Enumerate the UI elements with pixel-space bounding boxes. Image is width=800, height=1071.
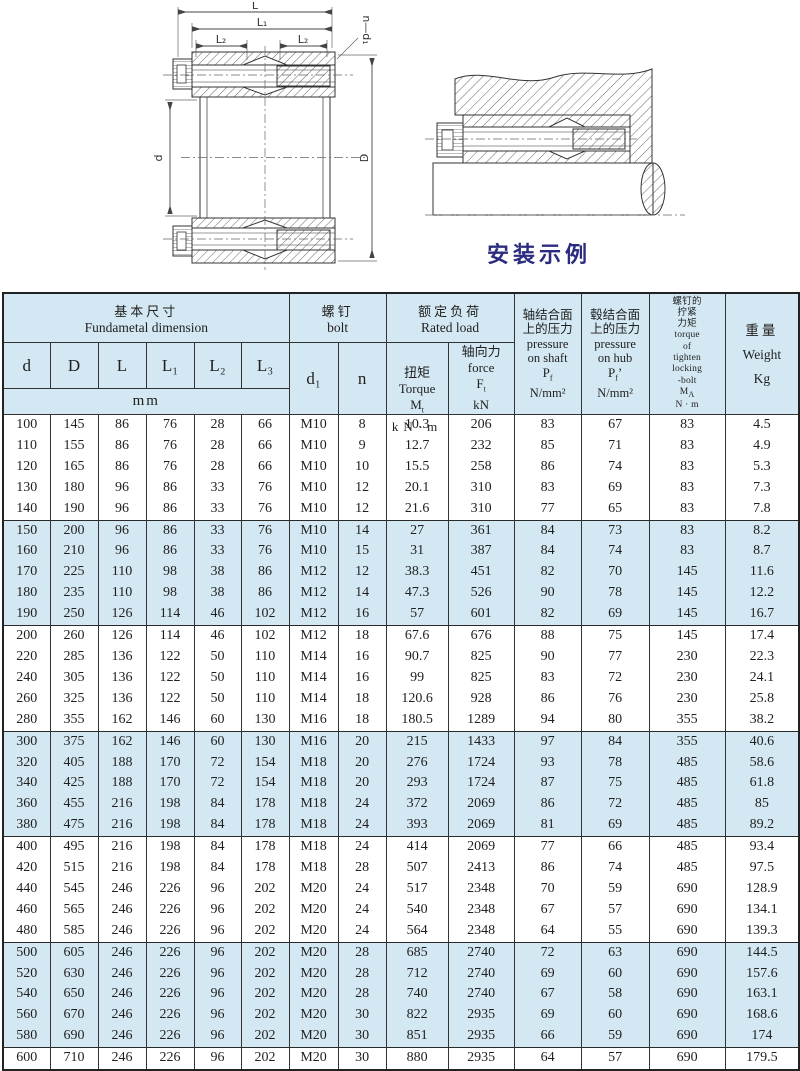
cell-L2: 84 xyxy=(194,858,241,879)
cell-weight: 7.8 xyxy=(725,499,799,520)
cell-p_hub: 57 xyxy=(581,1048,649,1070)
table-row: 58069024622696202M203085129356659690174 xyxy=(3,1026,799,1047)
cell-L2: 50 xyxy=(194,689,241,710)
cell-L2: 33 xyxy=(194,499,241,520)
cell-d1: M10 xyxy=(289,478,338,499)
cell-D: 690 xyxy=(50,1026,98,1047)
cell-L: 246 xyxy=(98,1048,146,1070)
cell-L2: 96 xyxy=(194,964,241,985)
cell-d1: M20 xyxy=(289,900,338,921)
table-row: 30037516214660130M16202151433978435540.6 xyxy=(3,731,799,752)
cell-L1: 98 xyxy=(146,583,194,604)
cell-ma: 83 xyxy=(649,499,725,520)
cell-force: 2740 xyxy=(448,984,514,1005)
cell-L3: 102 xyxy=(241,626,289,647)
cell-torque: 372 xyxy=(386,794,448,815)
cell-torque: 540 xyxy=(386,900,448,921)
cell-L2: 33 xyxy=(194,541,241,562)
cell-d: 600 xyxy=(3,1048,50,1070)
cell-ma: 230 xyxy=(649,647,725,668)
cell-ma: 485 xyxy=(649,794,725,815)
cell-L2: 33 xyxy=(194,478,241,499)
cell-d: 300 xyxy=(3,731,50,752)
cell-d1: M10 xyxy=(289,436,338,457)
cell-weight: 128.9 xyxy=(725,879,799,900)
cell-weight: 58.6 xyxy=(725,753,799,774)
cell-d: 580 xyxy=(3,1026,50,1047)
table-row: 14019096863376M101221.63107765837.8 xyxy=(3,499,799,520)
cell-weight: 179.5 xyxy=(725,1048,799,1070)
cell-force: 1724 xyxy=(448,773,514,794)
cell-p_shaft: 67 xyxy=(514,900,581,921)
cell-L3: 178 xyxy=(241,858,289,879)
cell-n: 20 xyxy=(338,773,386,794)
cell-L2: 46 xyxy=(194,626,241,647)
cell-L2: 84 xyxy=(194,815,241,836)
cell-L2: 50 xyxy=(194,647,241,668)
cell-d1: M20 xyxy=(289,1048,338,1070)
cell-L: 136 xyxy=(98,689,146,710)
cell-ma: 83 xyxy=(649,520,725,541)
cell-L1: 226 xyxy=(146,879,194,900)
dim-label-L2-right: L₂ xyxy=(298,33,309,46)
cell-n: 14 xyxy=(338,520,386,541)
table-row: 56067024622696202M203082229356960690168.… xyxy=(3,1005,799,1026)
cell-d: 160 xyxy=(3,541,50,562)
cell-weight: 40.6 xyxy=(725,731,799,752)
cell-d: 360 xyxy=(3,794,50,815)
header-col-L2: L₂ xyxy=(194,343,241,389)
cell-torque: 67.6 xyxy=(386,626,448,647)
cell-weight: 7.3 xyxy=(725,478,799,499)
cell-d1: M20 xyxy=(289,1005,338,1026)
cell-d1: M18 xyxy=(289,753,338,774)
cell-n: 28 xyxy=(338,858,386,879)
cell-p_hub: 60 xyxy=(581,964,649,985)
table-row: 170225110983886M121238.3451827014511.6 xyxy=(3,562,799,583)
cell-d: 170 xyxy=(3,562,50,583)
cell-L2: 84 xyxy=(194,837,241,858)
cell-n: 10 xyxy=(338,457,386,478)
cell-ma: 145 xyxy=(649,583,725,604)
cell-d: 200 xyxy=(3,626,50,647)
cell-weight: 8.7 xyxy=(725,541,799,562)
cell-p_hub: 84 xyxy=(581,731,649,752)
cell-L: 246 xyxy=(98,921,146,942)
cell-weight: 61.8 xyxy=(725,773,799,794)
cell-d: 150 xyxy=(3,520,50,541)
dim-label-d: d xyxy=(152,155,165,162)
cell-ma: 485 xyxy=(649,815,725,836)
cell-p_shaft: 77 xyxy=(514,837,581,858)
cell-p_hub: 55 xyxy=(581,921,649,942)
cell-force: 206 xyxy=(448,415,514,436)
cell-L3: 86 xyxy=(241,583,289,604)
cell-force: 676 xyxy=(448,626,514,647)
cell-p_hub: 58 xyxy=(581,984,649,1005)
cell-D: 545 xyxy=(50,879,98,900)
cell-D: 630 xyxy=(50,964,98,985)
cell-n: 14 xyxy=(338,583,386,604)
cell-d1: M20 xyxy=(289,984,338,1005)
cell-d: 180 xyxy=(3,583,50,604)
cell-force: 310 xyxy=(448,499,514,520)
cell-L2: 96 xyxy=(194,984,241,1005)
cell-d: 500 xyxy=(3,942,50,963)
cell-force: 2935 xyxy=(448,1005,514,1026)
cell-L1: 114 xyxy=(146,626,194,647)
cell-L: 162 xyxy=(98,710,146,731)
cell-n: 12 xyxy=(338,499,386,520)
cell-D: 515 xyxy=(50,858,98,879)
table-row: 42051521619884178M18285072413867448597.5 xyxy=(3,858,799,879)
cell-ma: 485 xyxy=(649,858,725,879)
cell-force: 825 xyxy=(448,647,514,668)
cell-L1: 86 xyxy=(146,478,194,499)
cell-force: 2348 xyxy=(448,921,514,942)
cell-L: 246 xyxy=(98,1026,146,1047)
cell-L2: 96 xyxy=(194,1005,241,1026)
cell-torque: 38.3 xyxy=(386,562,448,583)
cell-p_shaft: 64 xyxy=(514,1048,581,1070)
cell-p_hub: 72 xyxy=(581,794,649,815)
cell-L1: 226 xyxy=(146,984,194,1005)
cell-L1: 198 xyxy=(146,794,194,815)
cell-p_hub: 70 xyxy=(581,562,649,583)
cell-force: 2740 xyxy=(448,942,514,963)
cell-L2: 96 xyxy=(194,879,241,900)
cell-weight: 38.2 xyxy=(725,710,799,731)
cell-d1: M18 xyxy=(289,815,338,836)
cell-d: 400 xyxy=(3,837,50,858)
header-pressure-on-hub: 毂结合面 上的压力 pressure on hub Pf’ N/mm² xyxy=(581,293,649,415)
dim-label-n-d1: n—d₁ xyxy=(360,15,373,44)
cell-d1: M14 xyxy=(289,668,338,689)
cell-L: 110 xyxy=(98,583,146,604)
cell-D: 225 xyxy=(50,562,98,583)
cell-p_hub: 67 xyxy=(581,415,649,436)
cell-d: 460 xyxy=(3,900,50,921)
table-row: 180235110983886M121447.3526907814512.2 xyxy=(3,583,799,604)
cell-D: 155 xyxy=(50,436,98,457)
header-bolt: 螺钉 bolt xyxy=(289,293,386,343)
cell-ma: 690 xyxy=(649,1005,725,1026)
cell-L2: 38 xyxy=(194,583,241,604)
cell-force: 1724 xyxy=(448,753,514,774)
cell-force: 526 xyxy=(448,583,514,604)
cell-torque: 507 xyxy=(386,858,448,879)
cell-L1: 198 xyxy=(146,837,194,858)
cell-D: 200 xyxy=(50,520,98,541)
cell-force: 387 xyxy=(448,541,514,562)
cell-d1: M20 xyxy=(289,921,338,942)
table-row: 50060524622696202M202868527407263690144.… xyxy=(3,942,799,963)
cell-L3: 102 xyxy=(241,604,289,625)
cell-p_hub: 75 xyxy=(581,626,649,647)
cell-d: 520 xyxy=(3,964,50,985)
cell-p_shaft: 67 xyxy=(514,984,581,1005)
table-row: 38047521619884178M18243932069816948589.2 xyxy=(3,815,799,836)
cell-L: 216 xyxy=(98,794,146,815)
cell-L: 246 xyxy=(98,879,146,900)
cell-L1: 86 xyxy=(146,541,194,562)
cell-weight: 163.1 xyxy=(725,984,799,1005)
cell-L2: 28 xyxy=(194,436,241,457)
table-row: 11015586762866M10912.72328571834.9 xyxy=(3,436,799,457)
cell-ma: 145 xyxy=(649,604,725,625)
cell-d: 380 xyxy=(3,815,50,836)
cell-force: 2413 xyxy=(448,858,514,879)
cell-ma: 690 xyxy=(649,1048,725,1070)
cell-L2: 96 xyxy=(194,921,241,942)
cell-weight: 174 xyxy=(725,1026,799,1047)
cell-torque: 12.7 xyxy=(386,436,448,457)
cell-L1: 170 xyxy=(146,753,194,774)
cell-L3: 130 xyxy=(241,710,289,731)
cell-n: 30 xyxy=(338,1048,386,1070)
header-bolt-tightening-torque: 螺钉的 拧紧 力矩 torque of tighten locking -bol… xyxy=(649,293,725,415)
cell-n: 15 xyxy=(338,541,386,562)
cell-p_shaft: 88 xyxy=(514,626,581,647)
cell-L: 136 xyxy=(98,668,146,689)
cell-L: 246 xyxy=(98,942,146,963)
cell-D: 165 xyxy=(50,457,98,478)
header-col-force: 轴向力 force Ft kN xyxy=(448,343,514,415)
cell-L3: 76 xyxy=(241,499,289,520)
cell-weight: 5.3 xyxy=(725,457,799,478)
cell-L2: 84 xyxy=(194,794,241,815)
cell-weight: 134.1 xyxy=(725,900,799,921)
cell-D: 325 xyxy=(50,689,98,710)
cell-D: 250 xyxy=(50,604,98,625)
cell-L1: 76 xyxy=(146,457,194,478)
drawings-area: L L₁ L₂ L₂ L₃ d D n—d₁ xyxy=(0,0,800,292)
cell-n: 16 xyxy=(338,668,386,689)
cell-L2: 96 xyxy=(194,900,241,921)
cell-weight: 8.2 xyxy=(725,520,799,541)
cell-p_shaft: 97 xyxy=(514,731,581,752)
cell-L1: 198 xyxy=(146,815,194,836)
header-weight: 重量 Weight Kg xyxy=(725,293,799,415)
cell-force: 2069 xyxy=(448,794,514,815)
cell-d: 480 xyxy=(3,921,50,942)
cell-p_hub: 72 xyxy=(581,668,649,689)
cell-L3: 76 xyxy=(241,520,289,541)
cell-weight: 16.7 xyxy=(725,604,799,625)
cell-L: 216 xyxy=(98,837,146,858)
cell-p_shaft: 87 xyxy=(514,773,581,794)
cell-d: 100 xyxy=(3,415,50,436)
cell-ma: 485 xyxy=(649,773,725,794)
cell-d1: M12 xyxy=(289,583,338,604)
cell-ma: 690 xyxy=(649,879,725,900)
cell-L2: 50 xyxy=(194,668,241,689)
cell-p_shaft: 90 xyxy=(514,647,581,668)
header-pressure-on-shaft: 轴结合面 上的压力 pressure on shaft Pf N/mm² xyxy=(514,293,581,415)
cell-n: 8 xyxy=(338,415,386,436)
cell-force: 601 xyxy=(448,604,514,625)
cell-d: 560 xyxy=(3,1005,50,1026)
cell-p_shaft: 94 xyxy=(514,710,581,731)
cell-D: 260 xyxy=(50,626,98,647)
cell-n: 28 xyxy=(338,964,386,985)
table-row: 19025012611446102M121657601826914516.7 xyxy=(3,604,799,625)
cell-L: 110 xyxy=(98,562,146,583)
cell-d1: M12 xyxy=(289,626,338,647)
cell-torque: 517 xyxy=(386,879,448,900)
cell-p_shaft: 70 xyxy=(514,879,581,900)
cell-L1: 226 xyxy=(146,964,194,985)
cell-L3: 130 xyxy=(241,731,289,752)
cell-p_shaft: 83 xyxy=(514,478,581,499)
cell-ma: 230 xyxy=(649,689,725,710)
cell-torque: 393 xyxy=(386,815,448,836)
cell-D: 305 xyxy=(50,668,98,689)
cell-d: 240 xyxy=(3,668,50,689)
cell-L3: 202 xyxy=(241,1026,289,1047)
cell-d1: M10 xyxy=(289,457,338,478)
cell-torque: 276 xyxy=(386,753,448,774)
cell-d1: M16 xyxy=(289,710,338,731)
cell-n: 24 xyxy=(338,921,386,942)
cell-force: 258 xyxy=(448,457,514,478)
cell-L: 86 xyxy=(98,436,146,457)
cell-p_shaft: 72 xyxy=(514,942,581,963)
cell-torque: 685 xyxy=(386,942,448,963)
cell-torque: 712 xyxy=(386,964,448,985)
cell-D: 710 xyxy=(50,1048,98,1070)
cell-L: 96 xyxy=(98,520,146,541)
cell-ma: 83 xyxy=(649,541,725,562)
cell-L1: 76 xyxy=(146,436,194,457)
cell-force: 928 xyxy=(448,689,514,710)
cell-L1: 226 xyxy=(146,1005,194,1026)
cell-L: 136 xyxy=(98,647,146,668)
cell-p_hub: 59 xyxy=(581,879,649,900)
cell-p_shaft: 86 xyxy=(514,689,581,710)
table-row: 28035516214660130M1618180.51289948035538… xyxy=(3,710,799,731)
cell-weight: 89.2 xyxy=(725,815,799,836)
cell-d1: M16 xyxy=(289,731,338,752)
cell-d1: M12 xyxy=(289,562,338,583)
cell-p_hub: 60 xyxy=(581,1005,649,1026)
cell-n: 16 xyxy=(338,647,386,668)
cell-L3: 154 xyxy=(241,773,289,794)
table-row: 34042518817072154M18202931724877548561.8 xyxy=(3,773,799,794)
cell-p_shaft: 81 xyxy=(514,815,581,836)
cell-torque: 822 xyxy=(386,1005,448,1026)
cell-force: 2348 xyxy=(448,879,514,900)
cell-L1: 226 xyxy=(146,1048,194,1070)
cell-L1: 226 xyxy=(146,921,194,942)
cell-L2: 96 xyxy=(194,1048,241,1070)
cell-L3: 178 xyxy=(241,837,289,858)
cell-n: 28 xyxy=(338,984,386,1005)
cell-L3: 178 xyxy=(241,815,289,836)
cell-ma: 485 xyxy=(649,753,725,774)
cell-p_hub: 69 xyxy=(581,604,649,625)
cell-force: 2935 xyxy=(448,1026,514,1047)
header-col-D: D xyxy=(50,343,98,389)
cell-d1: M10 xyxy=(289,541,338,562)
cell-L1: 114 xyxy=(146,604,194,625)
cell-weight: 24.1 xyxy=(725,668,799,689)
cell-d1: M10 xyxy=(289,520,338,541)
cell-D: 650 xyxy=(50,984,98,1005)
cell-p_hub: 77 xyxy=(581,647,649,668)
table-row: 15020096863376M1014273618473838.2 xyxy=(3,520,799,541)
cell-p_hub: 78 xyxy=(581,583,649,604)
header-col-L3: L₃ xyxy=(241,343,289,389)
table-body: 10014586762866M10810.32068367834.5110155… xyxy=(3,415,799,1071)
cell-d: 340 xyxy=(3,773,50,794)
cell-ma: 690 xyxy=(649,1026,725,1047)
cell-ma: 145 xyxy=(649,562,725,583)
header-col-torque: 扭矩 Torque Mt kN·m xyxy=(386,343,448,415)
table-row: 22028513612250110M141690.7825907723022.3 xyxy=(3,647,799,668)
cell-weight: 17.4 xyxy=(725,626,799,647)
cell-d: 110 xyxy=(3,436,50,457)
cell-d: 130 xyxy=(3,478,50,499)
cell-D: 235 xyxy=(50,583,98,604)
cell-p_shaft: 86 xyxy=(514,457,581,478)
cell-L3: 202 xyxy=(241,1048,289,1070)
cell-d1: M20 xyxy=(289,1026,338,1047)
cell-weight: 139.3 xyxy=(725,921,799,942)
cell-p_shaft: 82 xyxy=(514,604,581,625)
cell-ma: 690 xyxy=(649,964,725,985)
table-row: 48058524622696202M202456423486455690139.… xyxy=(3,921,799,942)
cell-D: 210 xyxy=(50,541,98,562)
cell-torque: 90.7 xyxy=(386,647,448,668)
table-row: 36045521619884178M18243722069867248585 xyxy=(3,794,799,815)
assembly-cross-section-drawing: L L₁ L₂ L₂ L₃ d D n—d₁ xyxy=(125,2,420,290)
cell-L: 216 xyxy=(98,858,146,879)
cell-torque: 180.5 xyxy=(386,710,448,731)
cell-force: 2935 xyxy=(448,1048,514,1070)
cell-p_hub: 57 xyxy=(581,900,649,921)
cell-D: 670 xyxy=(50,1005,98,1026)
table-row: 44054524622696202M202451723487059690128.… xyxy=(3,879,799,900)
cell-d: 440 xyxy=(3,879,50,900)
cell-d1: M20 xyxy=(289,879,338,900)
cell-force: 361 xyxy=(448,520,514,541)
cell-L1: 76 xyxy=(146,415,194,436)
cell-L1: 146 xyxy=(146,731,194,752)
cell-d1: M12 xyxy=(289,604,338,625)
cell-force: 2069 xyxy=(448,837,514,858)
cell-ma: 83 xyxy=(649,415,725,436)
cell-force: 825 xyxy=(448,668,514,689)
cell-D: 375 xyxy=(50,731,98,752)
cell-L3: 110 xyxy=(241,647,289,668)
cell-torque: 215 xyxy=(386,731,448,752)
cell-p_shaft: 84 xyxy=(514,541,581,562)
cell-d1: M10 xyxy=(289,499,338,520)
cell-p_hub: 66 xyxy=(581,837,649,858)
shaft xyxy=(433,163,665,215)
cell-d1: M18 xyxy=(289,837,338,858)
cell-L2: 28 xyxy=(194,457,241,478)
cell-weight: 22.3 xyxy=(725,647,799,668)
cell-D: 355 xyxy=(50,710,98,731)
cell-D: 585 xyxy=(50,921,98,942)
cell-D: 495 xyxy=(50,837,98,858)
cell-d: 260 xyxy=(3,689,50,710)
cell-n: 20 xyxy=(338,731,386,752)
cell-p_hub: 73 xyxy=(581,520,649,541)
cell-p_hub: 65 xyxy=(581,499,649,520)
